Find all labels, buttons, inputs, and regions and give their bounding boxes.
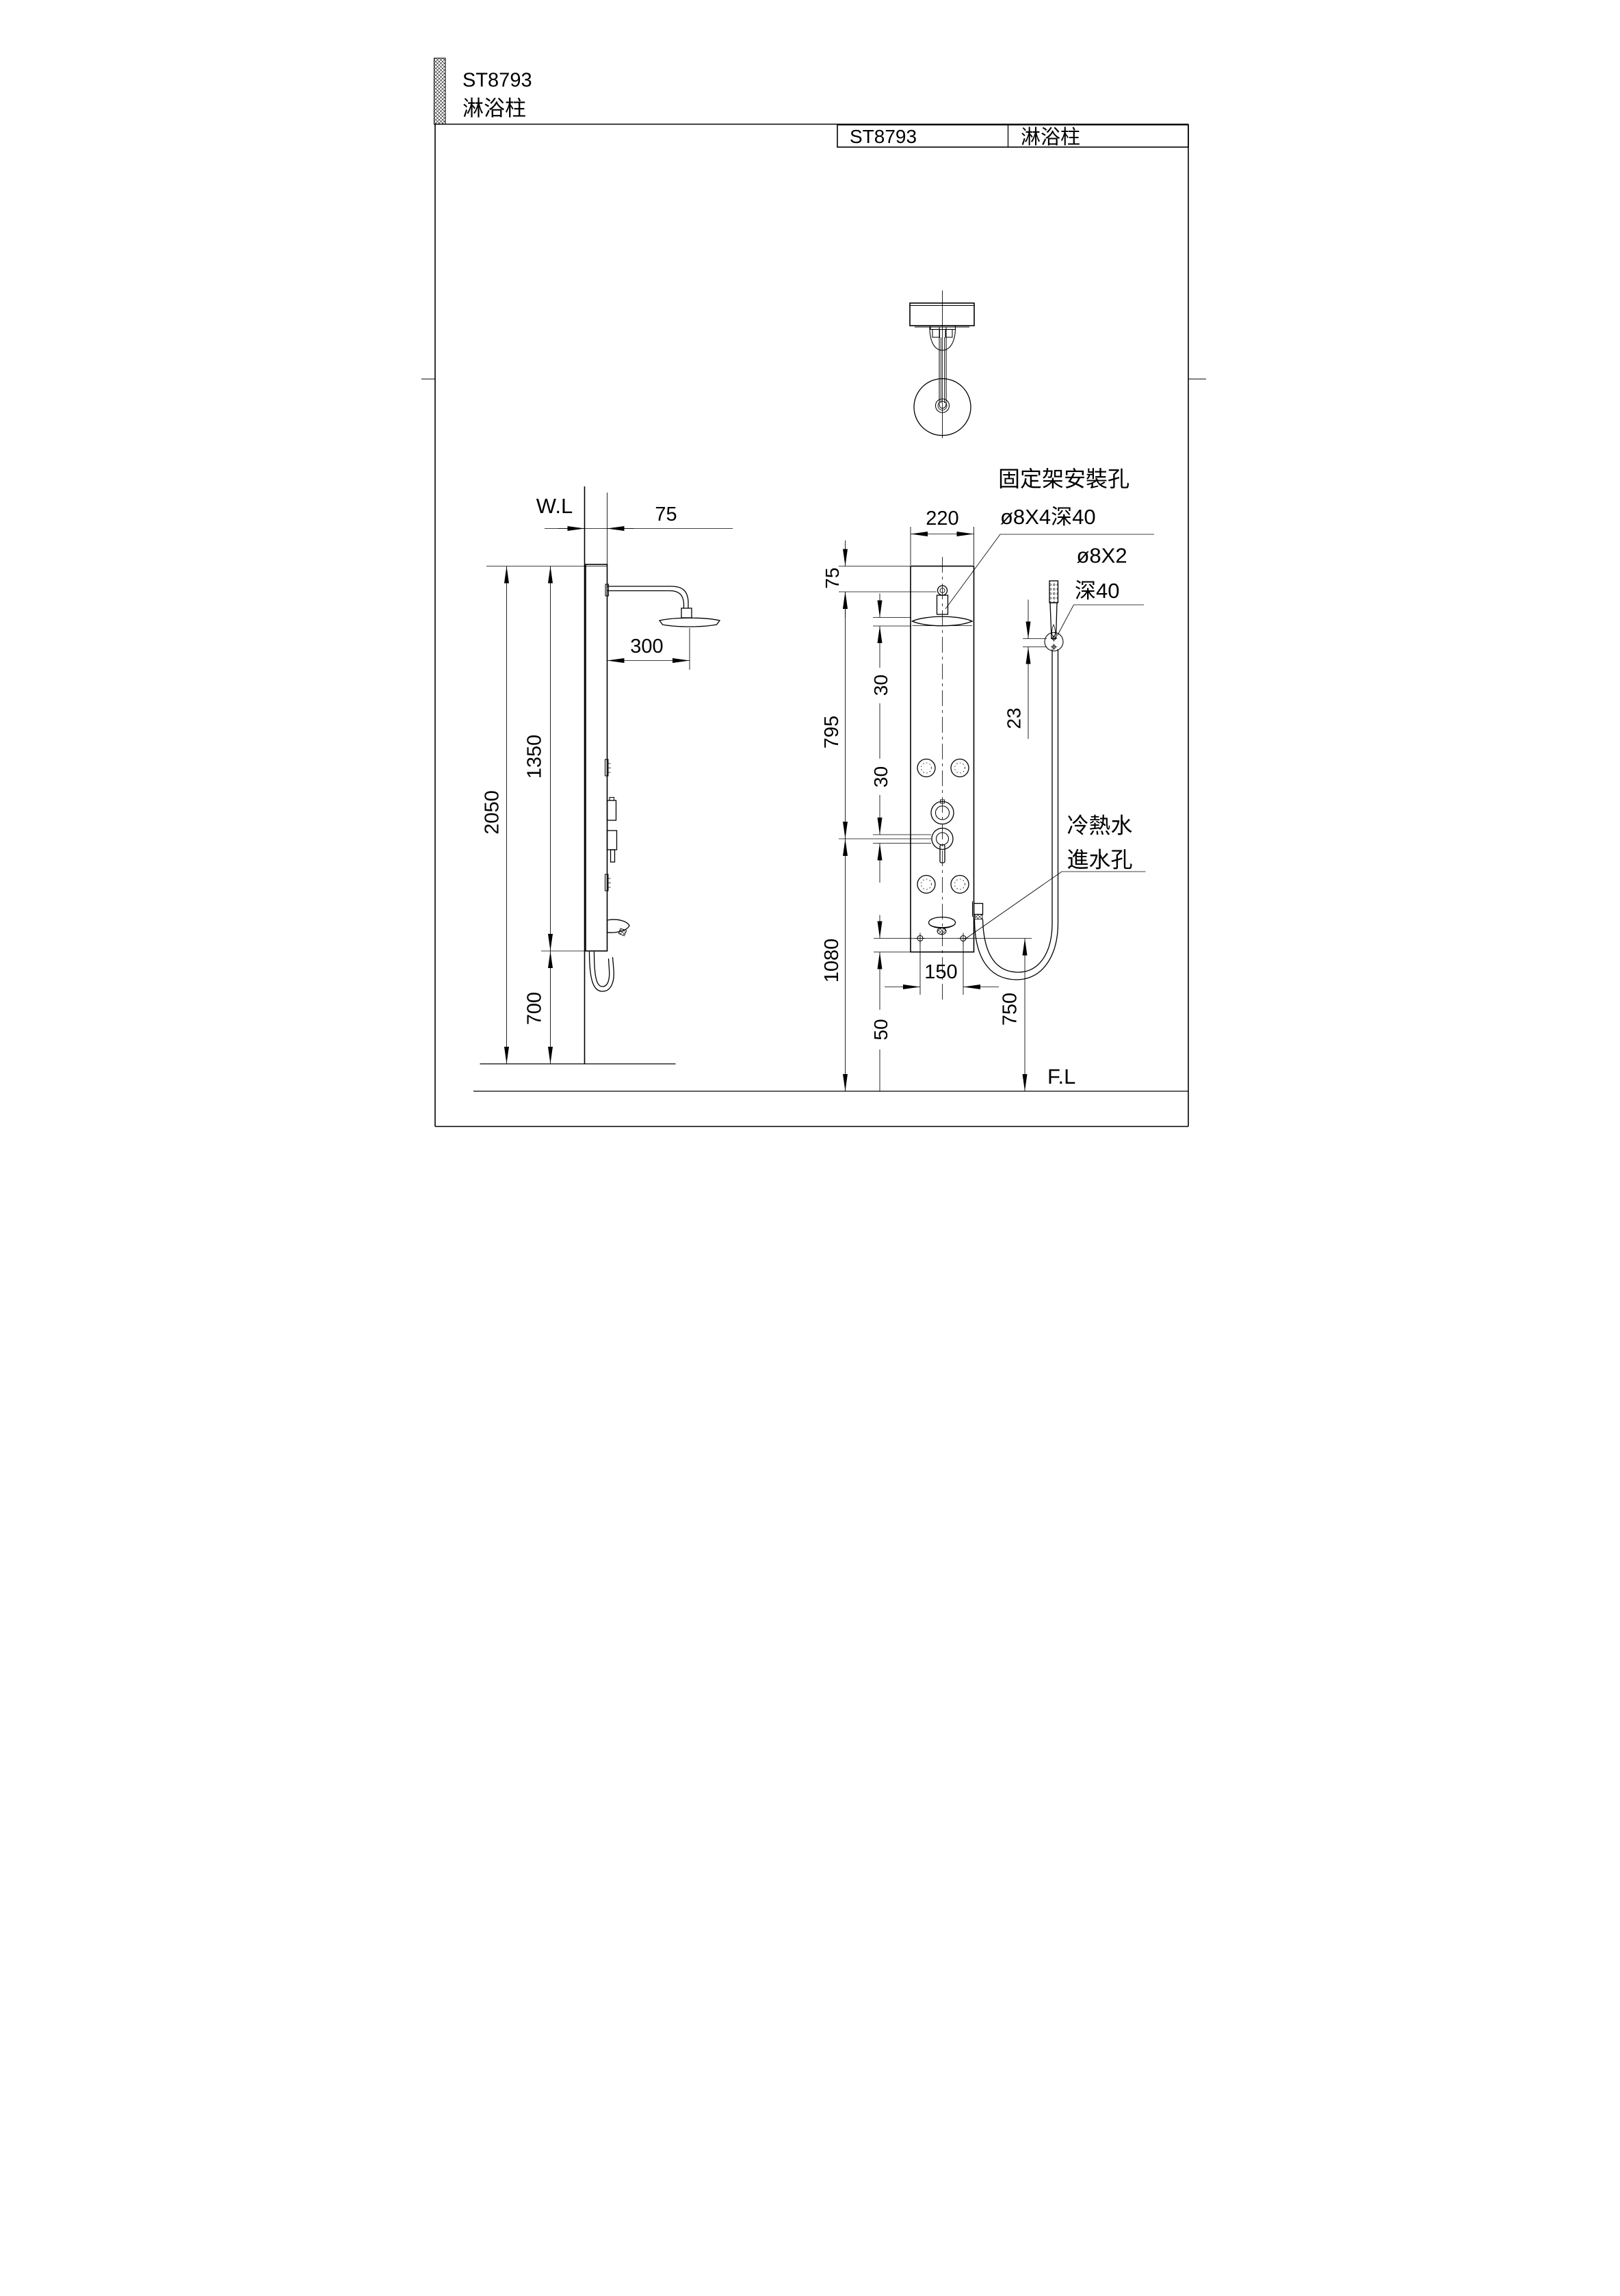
body-jet bbox=[951, 759, 969, 777]
dim-inlet-spacing: 150 bbox=[885, 941, 999, 995]
note-inlet-line1: 冷熱水 bbox=[1067, 813, 1133, 838]
top-view-bracket bbox=[930, 326, 956, 330]
dim-panel-width-label: 220 bbox=[926, 508, 958, 530]
dim-panel-height: 1350 bbox=[524, 566, 551, 952]
note-inlet-line2: 進水孔 bbox=[1067, 848, 1133, 872]
dim-top-to-bracket-label: 75 bbox=[822, 567, 843, 588]
dim-inlet-to-bottom-label: 50 bbox=[870, 1019, 891, 1040]
side-shower-arm bbox=[607, 586, 689, 608]
dim-wall-offset-label: 75 bbox=[655, 504, 677, 525]
body-jets bbox=[917, 759, 969, 893]
title-block: ST8793 淋浴柱 bbox=[837, 125, 1188, 149]
dim-total-height: 2050 bbox=[482, 566, 507, 1065]
corner-hatch-bar bbox=[434, 58, 446, 125]
title-block-product-name: 淋浴柱 bbox=[1021, 126, 1080, 148]
side-showerhead-disc bbox=[659, 618, 720, 627]
hand-shower bbox=[1045, 581, 1063, 651]
dim-holder-holes: 23 bbox=[1004, 600, 1047, 740]
floor-line: F.L bbox=[473, 1065, 1188, 1091]
floor-line-label: F.L bbox=[1047, 1065, 1075, 1088]
dim-panel-height-label: 1350 bbox=[524, 735, 546, 779]
note-bracket-line1: 固定架安裝孔 bbox=[998, 467, 1129, 491]
dim-total-height-label: 2050 bbox=[482, 790, 504, 835]
note-water-inlet: 冷熱水 進水孔 bbox=[965, 813, 1146, 940]
front-view: 220 75 795 1080 30 30 bbox=[821, 508, 1063, 1091]
note-handshower-line2: 深40 bbox=[1075, 579, 1119, 603]
dim-bottom-height: 700 bbox=[524, 951, 551, 1064]
header-model: ST8793 bbox=[462, 70, 532, 92]
wall-line-label: W.L bbox=[536, 494, 573, 518]
header-product-name: 淋浴柱 bbox=[462, 96, 526, 120]
dim-valve-to-floor-label: 1080 bbox=[821, 939, 843, 983]
header: ST8793 淋浴柱 bbox=[462, 70, 532, 121]
top-view bbox=[910, 291, 974, 439]
drawing-sheet: ST8793 淋浴柱 ST8793 淋浴柱 W.L bbox=[405, 0, 1215, 1148]
side-handshower-loop bbox=[590, 952, 614, 991]
spout-aerator bbox=[937, 928, 946, 935]
dim-inlet-height-label: 750 bbox=[1000, 993, 1021, 1026]
body-jet bbox=[951, 876, 969, 893]
dim-wall-offset: 75 bbox=[545, 493, 733, 565]
side-panel-body bbox=[586, 564, 607, 951]
dim-arm-length-label: 300 bbox=[630, 636, 663, 657]
hose-connector bbox=[974, 904, 983, 915]
top-view-panel bbox=[910, 303, 974, 326]
body-jet bbox=[917, 876, 935, 893]
side-view: W.L 2050 1350 bbox=[480, 486, 733, 1064]
dim-inlet-height: 750 bbox=[1000, 939, 1025, 1092]
dim-panel-width: 220 bbox=[911, 508, 974, 565]
hand-shower-head bbox=[1049, 581, 1058, 603]
dim-bracket-to-valve-label: 795 bbox=[821, 716, 843, 748]
dim-jet-offset-upper-label: 30 bbox=[870, 675, 891, 696]
note-handshower-leader bbox=[1058, 605, 1145, 636]
side-mixer-lever bbox=[611, 850, 615, 862]
dim-inlet-spacing-label: 150 bbox=[924, 961, 957, 983]
side-mixer-knob bbox=[607, 831, 617, 850]
dim-bottom-height-label: 700 bbox=[524, 992, 546, 1025]
note-inlet-leader bbox=[965, 872, 1146, 939]
dim-arm-length: 300 bbox=[607, 628, 690, 670]
shower-hose bbox=[975, 649, 1058, 980]
note-bracket-line2: ø8X4深40 bbox=[1000, 505, 1096, 529]
cad-drawing-canvas: ST8793 淋浴柱 ST8793 淋浴柱 W.L bbox=[405, 0, 1215, 1148]
note-handshower-line1: ø8X2 bbox=[1077, 544, 1127, 568]
side-diverter-knob bbox=[607, 800, 616, 820]
dim-holder-holes-label: 23 bbox=[1004, 707, 1025, 729]
note-handshower-holes: ø8X2 深40 bbox=[1058, 544, 1145, 636]
side-head-nozzle bbox=[681, 608, 692, 618]
body-jet bbox=[917, 759, 935, 777]
dim-jet-offset-lower-label: 30 bbox=[870, 766, 891, 787]
title-block-model: ST8793 bbox=[850, 126, 917, 147]
